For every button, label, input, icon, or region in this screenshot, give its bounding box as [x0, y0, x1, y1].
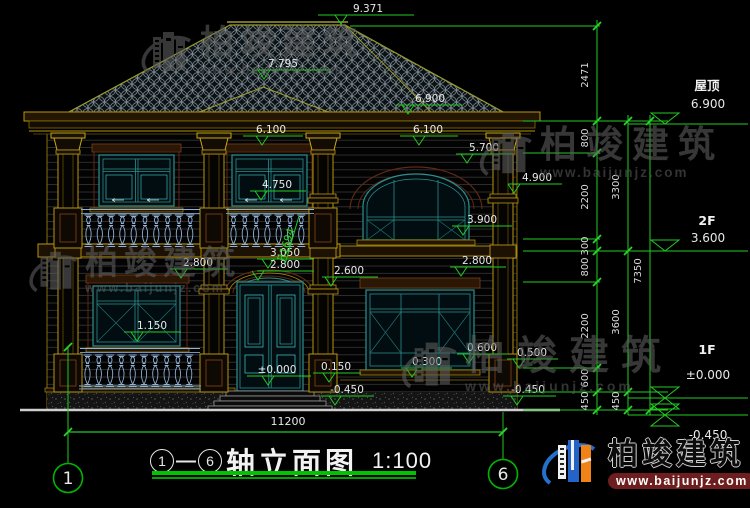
level-name: 2F: [698, 213, 715, 228]
dimension-label: 6.100: [413, 124, 443, 136]
chain-dimension-label: 7350: [633, 258, 644, 283]
title-axis-from: 1: [150, 449, 174, 473]
dimension-label: 3.900: [467, 214, 497, 226]
dimension-label: -0.450: [511, 384, 545, 396]
brand-logo: 柏竣建筑 www.baijunjz.com: [538, 431, 750, 497]
dimension-label: ±0.000: [258, 364, 297, 376]
chain-dimension-label: 300: [580, 236, 591, 255]
dimension-label: 1.150: [137, 320, 167, 332]
chain-dimension-label: 3300: [611, 174, 622, 199]
chain-dimension-label: 800: [580, 128, 591, 147]
title-underline: [152, 471, 416, 475]
dimension-label: 6.100: [256, 124, 286, 136]
brand-logo-icon: [538, 431, 602, 497]
dimension-label: 2.800: [183, 257, 213, 269]
elevation-drawing: 9.3717.7956.9006.1006.1005.7004.9004.750…: [0, 0, 750, 503]
drawing-title: 1 — 6 轴立面图 1:100: [150, 440, 432, 482]
chain-dimension-label: 2200: [580, 184, 591, 209]
dimension-label: 9.371: [353, 3, 383, 15]
brand-name: 柏竣建筑: [608, 440, 750, 470]
overall-width-label: 11200: [271, 415, 306, 428]
chain-dimension-label: 600: [580, 368, 591, 387]
level-value: ±0.000: [686, 368, 730, 382]
chain-dimension-label: 2471: [580, 62, 591, 87]
dimension-label: 0.150: [321, 361, 351, 373]
level-name: 1F: [698, 342, 715, 357]
chain-dimension-label: 450: [611, 391, 622, 410]
dimension-label: 4.750: [262, 179, 292, 191]
level-value: 3.600: [691, 231, 725, 245]
dimension-label: 0.600: [467, 342, 497, 354]
axis-number: 6: [498, 465, 509, 485]
axis-number: 1: [63, 469, 74, 489]
dimension-label: 0.300: [412, 356, 442, 368]
cad-canvas: 9.3717.7956.9006.1006.1005.7004.9004.750…: [0, 0, 750, 503]
dimension-label: 5.700: [469, 142, 499, 154]
dimension-label: 2.600: [334, 265, 364, 277]
dimension-label: -0.450: [330, 384, 364, 396]
entrance-steps: [208, 391, 332, 410]
title-dash: —: [176, 450, 196, 473]
brand-url: www.baijunjz.com: [608, 473, 750, 489]
dimension-label: 0.500: [517, 347, 547, 359]
dimension-label: 6.900: [415, 93, 445, 105]
chain-dimension-label: 450: [580, 391, 591, 410]
level-value: 6.900: [691, 97, 725, 111]
chain-dimension-label: 2200: [580, 313, 591, 338]
chain-dimension-label: 800: [580, 257, 591, 276]
dimension-label: 4.900: [522, 172, 552, 184]
level-name: 屋顶: [694, 78, 720, 93]
dimension-label: 2.800: [462, 255, 492, 267]
title-axis-to: 6: [198, 449, 222, 473]
title-text: 轴立面图: [226, 440, 358, 482]
dimension-label: 7.795: [268, 58, 298, 70]
chain-dimension-label: 3600: [611, 309, 622, 334]
title-underline-thin: [152, 477, 416, 479]
